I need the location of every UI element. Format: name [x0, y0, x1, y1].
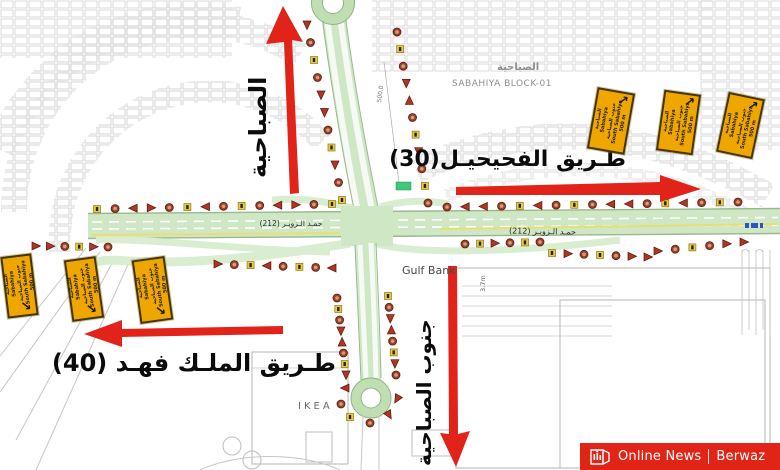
traffic-sign-icon	[552, 201, 560, 209]
watermark-banner: Online News Berwaz	[580, 443, 780, 470]
traffic-sign-icon	[165, 204, 173, 212]
traffic-sign-icon	[307, 39, 315, 47]
green-marker	[396, 182, 411, 190]
traffic-sign-icon	[597, 252, 604, 259]
traffic-sign-icon	[387, 325, 395, 334]
traffic-sign-icon	[220, 202, 228, 210]
traffic-sign-icon	[405, 96, 413, 105]
traffic-sign-icon	[256, 202, 264, 210]
traffic-sign-icon	[461, 203, 470, 211]
traffic-sign-icon	[402, 79, 410, 88]
traffic-sign-icon	[564, 250, 573, 258]
traffic-sign-icon	[339, 197, 346, 204]
traffic-sign-icon	[147, 204, 156, 212]
traffic-sign-icon	[698, 199, 706, 207]
road-end-marker-icon	[745, 223, 763, 228]
traffic-sign-icon	[516, 202, 523, 209]
traffic-sign-icon	[201, 203, 210, 211]
traffic-sign-icon	[385, 293, 392, 300]
traffic-sign-icon	[104, 243, 112, 251]
traffic-sign-icon	[477, 240, 484, 247]
label-sabahiya-block-en: SABAHIYA BLOCK-01	[452, 79, 552, 89]
map-canvas	[0, 0, 780, 470]
traffic-sign-icon	[336, 316, 344, 324]
traffic-sign-icon	[61, 242, 69, 250]
traffic-sign-icon	[331, 161, 339, 170]
traffic-sign-icon	[606, 200, 615, 208]
traffic-sign-icon	[679, 199, 688, 207]
label-gulf-bank: Gulf Bank	[402, 264, 456, 277]
label-fahaheel-road: طـريق الفحيحيـل(30)	[398, 147, 626, 172]
traffic-sign-icon	[571, 201, 578, 208]
traffic-sign-icon	[230, 261, 238, 269]
traffic-sign-icon	[723, 240, 732, 248]
traffic-sign-icon	[341, 361, 348, 368]
traffic-map: الصباحية طـريق الفحيحيـل(30) طـريق الملـ…	[0, 0, 780, 470]
traffic-sign-icon	[328, 144, 335, 151]
traffic-sign-icon	[339, 349, 347, 357]
traffic-sign-icon	[317, 91, 325, 100]
traffic-sign-icon	[671, 245, 679, 253]
traffic-sign-icon	[491, 239, 500, 247]
traffic-sign-icon	[498, 202, 506, 210]
traffic-sign-icon	[303, 21, 311, 30]
traffic-sign-icon	[390, 349, 397, 356]
label-king-fahd-road: طـريق الملـك فهـد (40)	[78, 349, 336, 377]
traffic-sign-icon	[385, 303, 393, 311]
traffic-sign-icon	[393, 28, 401, 36]
traffic-sign-icon	[734, 198, 742, 206]
traffic-sign-icon	[612, 252, 620, 260]
traffic-sign-icon	[624, 200, 633, 208]
traffic-sign-icon	[506, 239, 514, 247]
traffic-sign-icon	[32, 242, 41, 250]
traffic-sign-icon	[310, 200, 318, 208]
traffic-sign-icon	[314, 74, 322, 82]
traffic-sign-icon	[341, 384, 350, 392]
traffic-sign-icon	[628, 252, 637, 260]
traffic-sign-icon	[366, 419, 374, 427]
traffic-sign-icon	[312, 263, 320, 271]
traffic-sign-icon	[740, 238, 749, 246]
traffic-sign-icon	[342, 371, 350, 380]
label-south-sabahiya-vertical: جنوب الصباحية	[412, 319, 436, 466]
traffic-sign-icon	[329, 201, 336, 208]
traffic-sign-icon	[311, 57, 318, 64]
traffic-sign-icon	[580, 250, 588, 258]
traffic-sign-icon	[238, 202, 245, 209]
traffic-sign-icon	[337, 400, 345, 408]
label-ikea: IKEA	[298, 401, 333, 412]
traffic-sign-icon	[335, 306, 342, 313]
label-sabahiya-vertical: الصباحية	[244, 77, 272, 178]
label-sabahiya-block-ar: الصباحية	[497, 62, 539, 73]
traffic-sign-icon	[129, 204, 138, 212]
traffic-sign-icon	[397, 46, 404, 53]
traffic-sign-icon	[76, 243, 83, 250]
traffic-sign-icon	[643, 200, 651, 208]
traffic-sign-icon	[399, 62, 407, 70]
traffic-sign-icon	[296, 263, 303, 270]
traffic-sign-icon	[338, 338, 346, 347]
traffic-sign-icon	[522, 239, 529, 246]
traffic-sign-icon	[347, 414, 354, 421]
traffic-sign-icon	[335, 179, 343, 187]
traffic-sign-icon	[184, 204, 191, 211]
traffic-sign-icon	[589, 201, 597, 209]
traffic-sign-icon	[644, 253, 653, 261]
traffic-sign-icon	[94, 206, 101, 213]
watermark-divider	[708, 449, 709, 464]
traffic-sign-icon	[321, 109, 329, 118]
traffic-sign-icon	[654, 247, 663, 255]
traffic-sign-icon	[392, 371, 400, 379]
berwaz-logo-icon	[589, 448, 611, 466]
watermark-news-text: Online News	[618, 449, 701, 464]
direction-sign: ↘ الصباحيةSabahiya جنوب الصباحيةSouth Sa…	[0, 253, 38, 318]
traffic-sign-icon	[90, 243, 99, 251]
traffic-sign-icon	[247, 262, 254, 269]
traffic-sign-icon	[479, 202, 488, 210]
traffic-sign-icon	[389, 337, 397, 345]
traffic-sign-icon	[111, 205, 119, 213]
traffic-sign-icon	[424, 199, 432, 207]
traffic-sign-icon	[328, 264, 337, 272]
traffic-sign-icon	[706, 242, 714, 250]
traffic-sign-icon	[262, 262, 271, 270]
traffic-sign-icon	[689, 244, 696, 251]
red-arrow-left	[84, 320, 283, 347]
traffic-sign-icon	[536, 238, 544, 246]
traffic-sign-icon	[549, 250, 556, 257]
traffic-sign-icon	[391, 394, 402, 405]
traffic-sign-icon	[337, 327, 345, 336]
watermark-brand-text: Berwaz	[716, 449, 765, 464]
traffic-sign-icon	[333, 294, 341, 302]
traffic-sign-icon	[421, 182, 428, 189]
label-road-212-left: حمـد الـزويـر (212)	[245, 219, 337, 228]
traffic-sign-icon	[324, 126, 332, 134]
label-dim-37: 3.7m	[479, 275, 487, 292]
traffic-sign-icon	[443, 203, 451, 211]
traffic-sign-icon	[533, 201, 542, 209]
traffic-sign-icon	[409, 114, 417, 122]
traffic-sign-icon	[386, 315, 394, 324]
traffic-sign-icon	[279, 262, 287, 270]
traffic-sign-icon	[461, 240, 469, 248]
traffic-sign-icon	[716, 199, 723, 206]
traffic-sign-icon	[391, 360, 399, 369]
traffic-sign-icon	[412, 131, 419, 138]
